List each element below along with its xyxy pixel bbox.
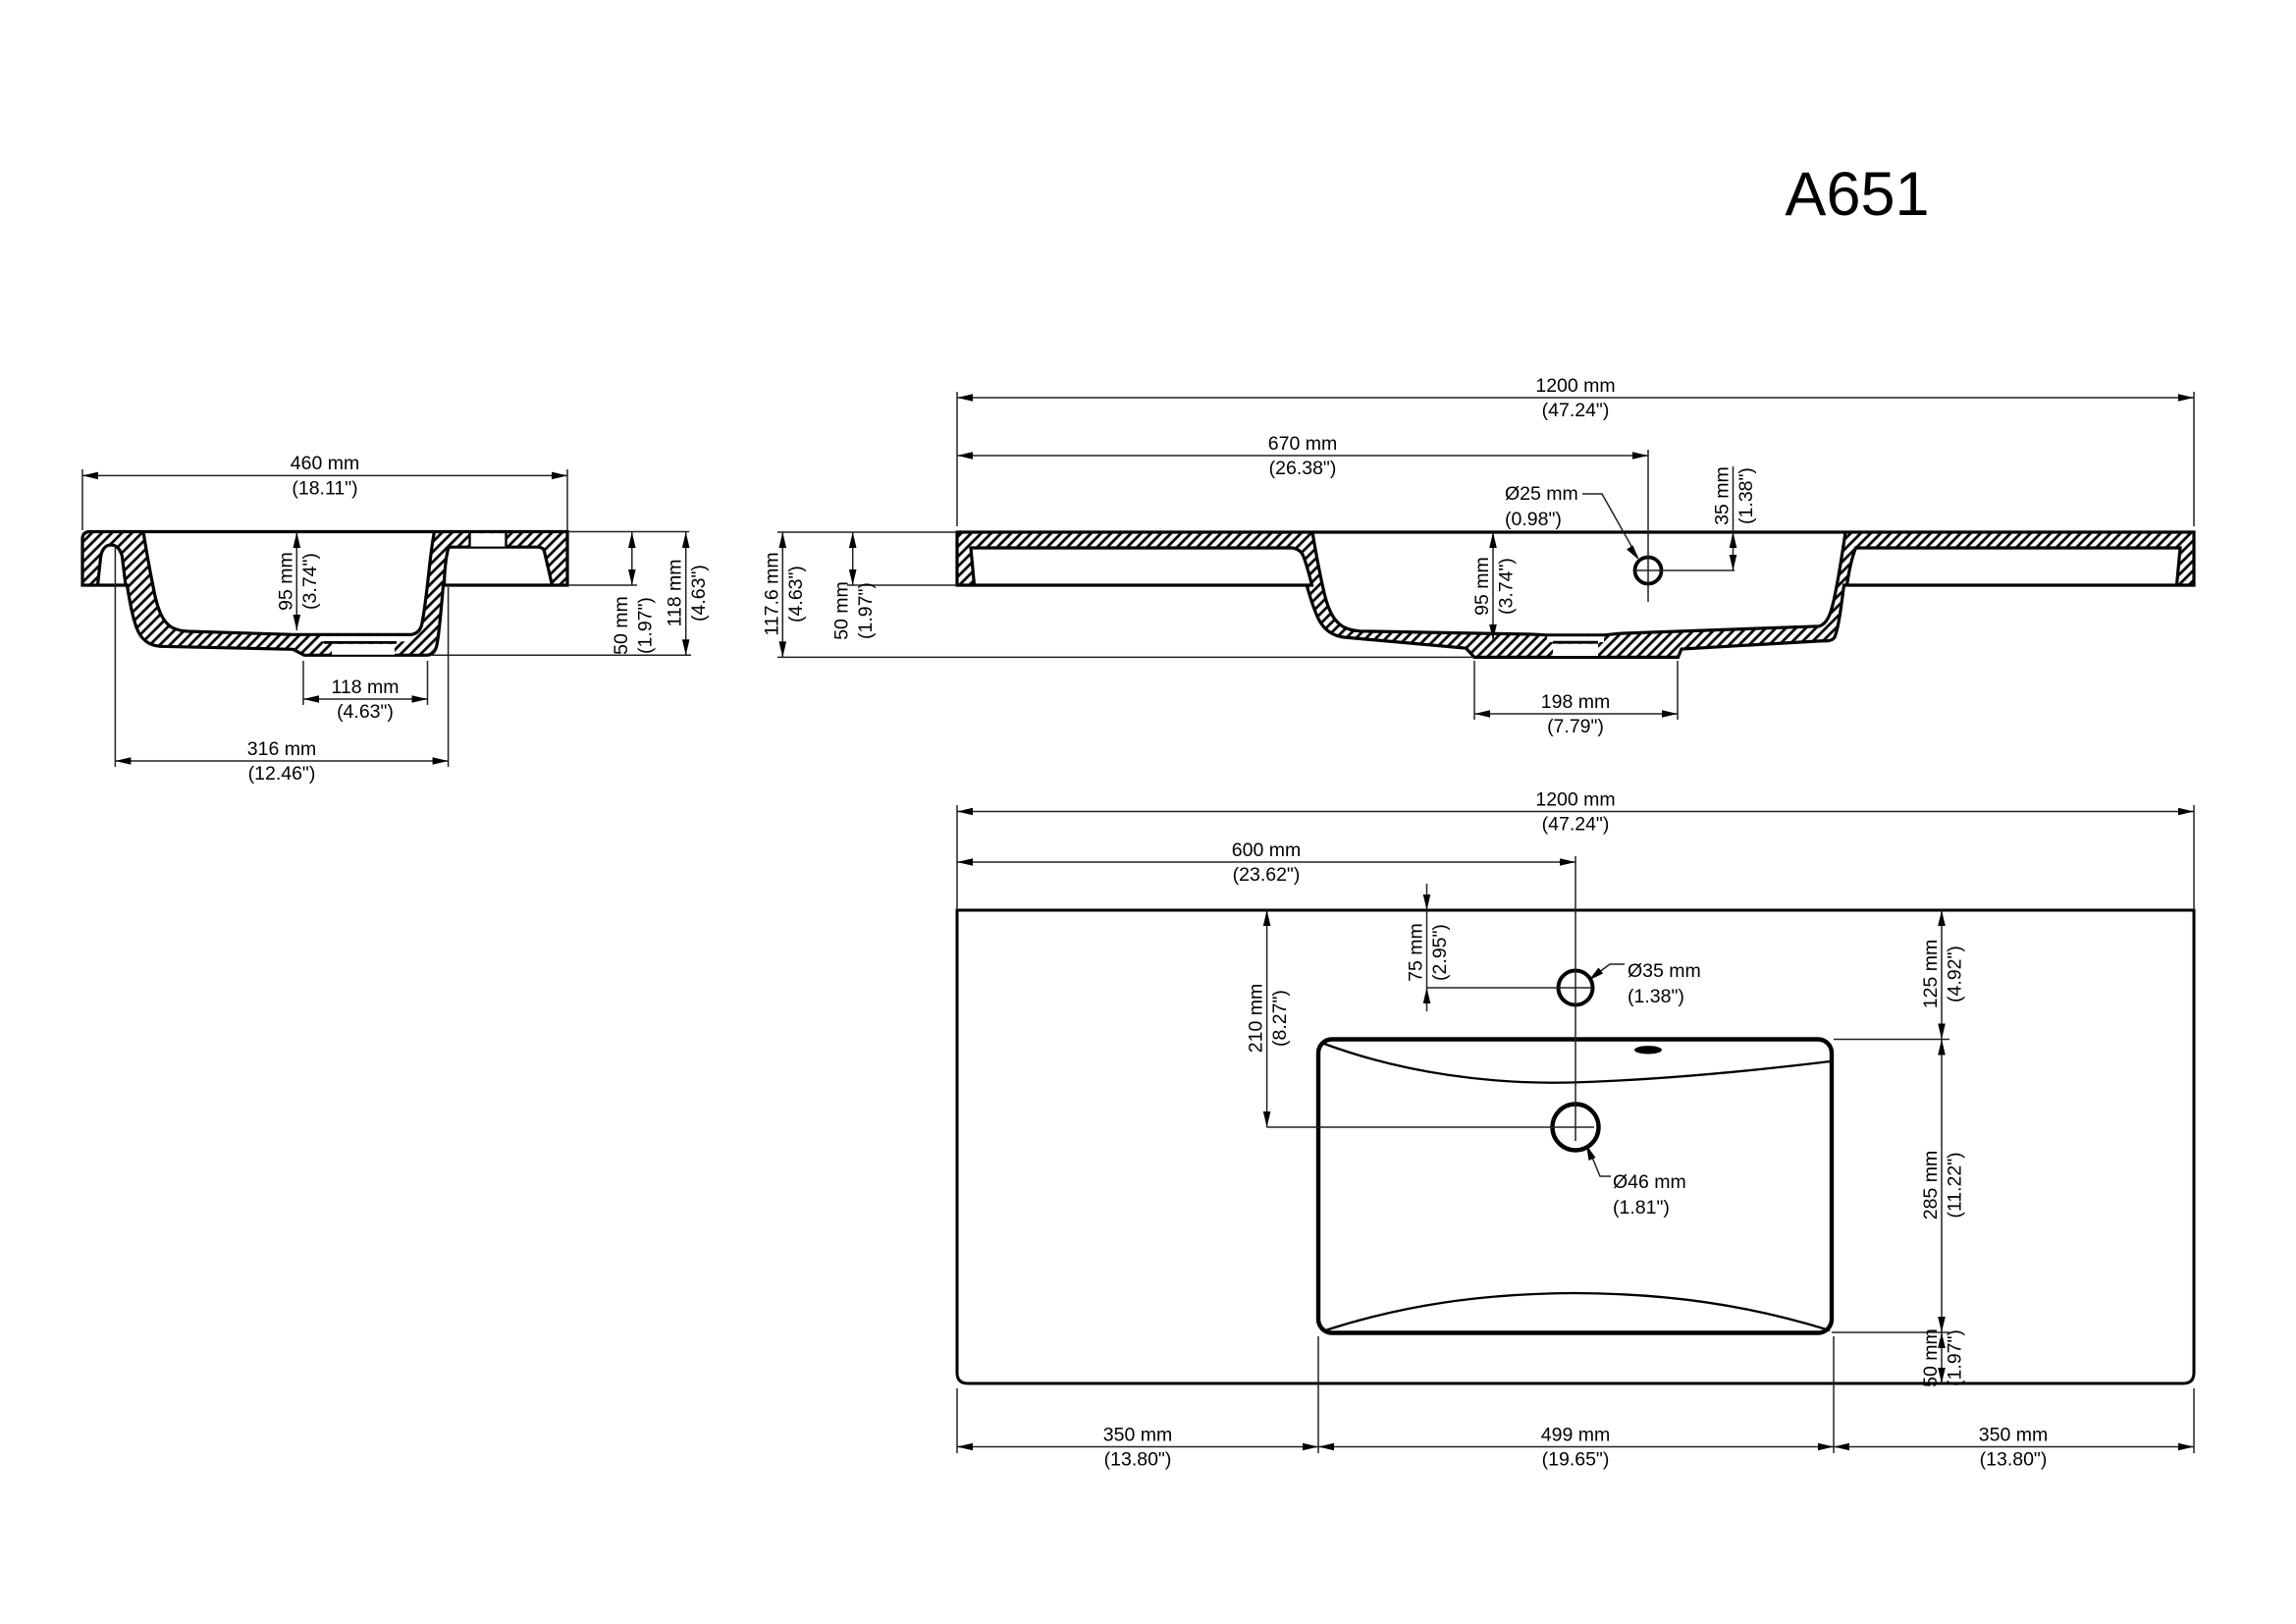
svg-text:A651: A651 bbox=[1785, 160, 1929, 229]
svg-text:Ø25 mm: Ø25 mm bbox=[1505, 483, 1578, 505]
svg-text:(19.65"): (19.65") bbox=[1542, 1449, 1610, 1471]
svg-text:118 mm: 118 mm bbox=[332, 677, 400, 698]
svg-text:(18.11"): (18.11") bbox=[292, 478, 357, 500]
svg-text:(7.79"): (7.79") bbox=[1547, 716, 1604, 737]
svg-text:(1.97"): (1.97") bbox=[1945, 1329, 1966, 1386]
svg-text:1200 mm: 1200 mm bbox=[1535, 789, 1615, 811]
svg-text:50 mm: 50 mm bbox=[611, 596, 632, 655]
svg-text:125 mm: 125 mm bbox=[1920, 940, 1942, 1008]
svg-text:316 mm: 316 mm bbox=[247, 738, 316, 760]
svg-text:350 mm: 350 mm bbox=[1979, 1425, 2048, 1446]
svg-text:Ø35 mm: Ø35 mm bbox=[1628, 960, 1701, 982]
svg-text:95 mm: 95 mm bbox=[275, 552, 296, 611]
svg-text:(1.38"): (1.38") bbox=[1735, 467, 1757, 524]
svg-text:35 mm: 35 mm bbox=[1712, 466, 1734, 525]
svg-text:460 mm: 460 mm bbox=[291, 453, 359, 474]
svg-text:(4.63"): (4.63") bbox=[785, 566, 807, 623]
svg-text:670 mm: 670 mm bbox=[1268, 433, 1337, 455]
svg-text:118 mm: 118 mm bbox=[665, 560, 686, 627]
svg-text:50 mm: 50 mm bbox=[831, 581, 853, 640]
svg-text:95 mm: 95 mm bbox=[1471, 557, 1493, 616]
svg-text:(11.22"): (11.22") bbox=[1945, 1152, 1966, 1218]
svg-text:(1.97"): (1.97") bbox=[634, 597, 656, 654]
svg-text:117.6 mm: 117.6 mm bbox=[761, 552, 782, 635]
svg-text:(4.63"): (4.63") bbox=[337, 701, 394, 723]
svg-text:(3.74"): (3.74") bbox=[299, 553, 321, 610]
svg-text:50 mm: 50 mm bbox=[1920, 1328, 1942, 1387]
svg-text:210 mm: 210 mm bbox=[1246, 984, 1267, 1053]
svg-text:1200 mm: 1200 mm bbox=[1535, 375, 1615, 397]
svg-text:600 mm: 600 mm bbox=[1232, 839, 1301, 861]
svg-text:(13.80"): (13.80") bbox=[1980, 1449, 2048, 1471]
svg-text:(1.81"): (1.81") bbox=[1613, 1197, 1670, 1218]
svg-text:(1.38"): (1.38") bbox=[1628, 986, 1684, 1007]
svg-text:(8.27"): (8.27") bbox=[1269, 990, 1291, 1047]
svg-text:(12.46"): (12.46") bbox=[248, 763, 316, 785]
svg-text:(23.62"): (23.62") bbox=[1233, 864, 1301, 886]
svg-text:(26.38"): (26.38") bbox=[1269, 458, 1337, 479]
svg-text:(47.24"): (47.24") bbox=[1542, 400, 1610, 421]
svg-text:(3.74"): (3.74") bbox=[1496, 558, 1518, 615]
svg-text:(4.63"): (4.63") bbox=[688, 565, 710, 622]
svg-text:(1.97"): (1.97") bbox=[855, 582, 877, 639]
svg-text:Ø46 mm: Ø46 mm bbox=[1613, 1171, 1686, 1193]
svg-text:285 mm: 285 mm bbox=[1920, 1151, 1942, 1219]
svg-text:198 mm: 198 mm bbox=[1541, 691, 1610, 713]
svg-text:(2.95"): (2.95") bbox=[1429, 924, 1451, 981]
svg-text:499 mm: 499 mm bbox=[1541, 1425, 1610, 1446]
svg-text:75 mm: 75 mm bbox=[1406, 923, 1427, 982]
svg-text:(4.92"): (4.92") bbox=[1945, 946, 1966, 1002]
svg-text:(13.80"): (13.80") bbox=[1104, 1449, 1172, 1471]
svg-text:350 mm: 350 mm bbox=[1103, 1425, 1172, 1446]
svg-text:(0.98"): (0.98") bbox=[1505, 509, 1562, 530]
svg-text:(47.24"): (47.24") bbox=[1542, 814, 1610, 836]
